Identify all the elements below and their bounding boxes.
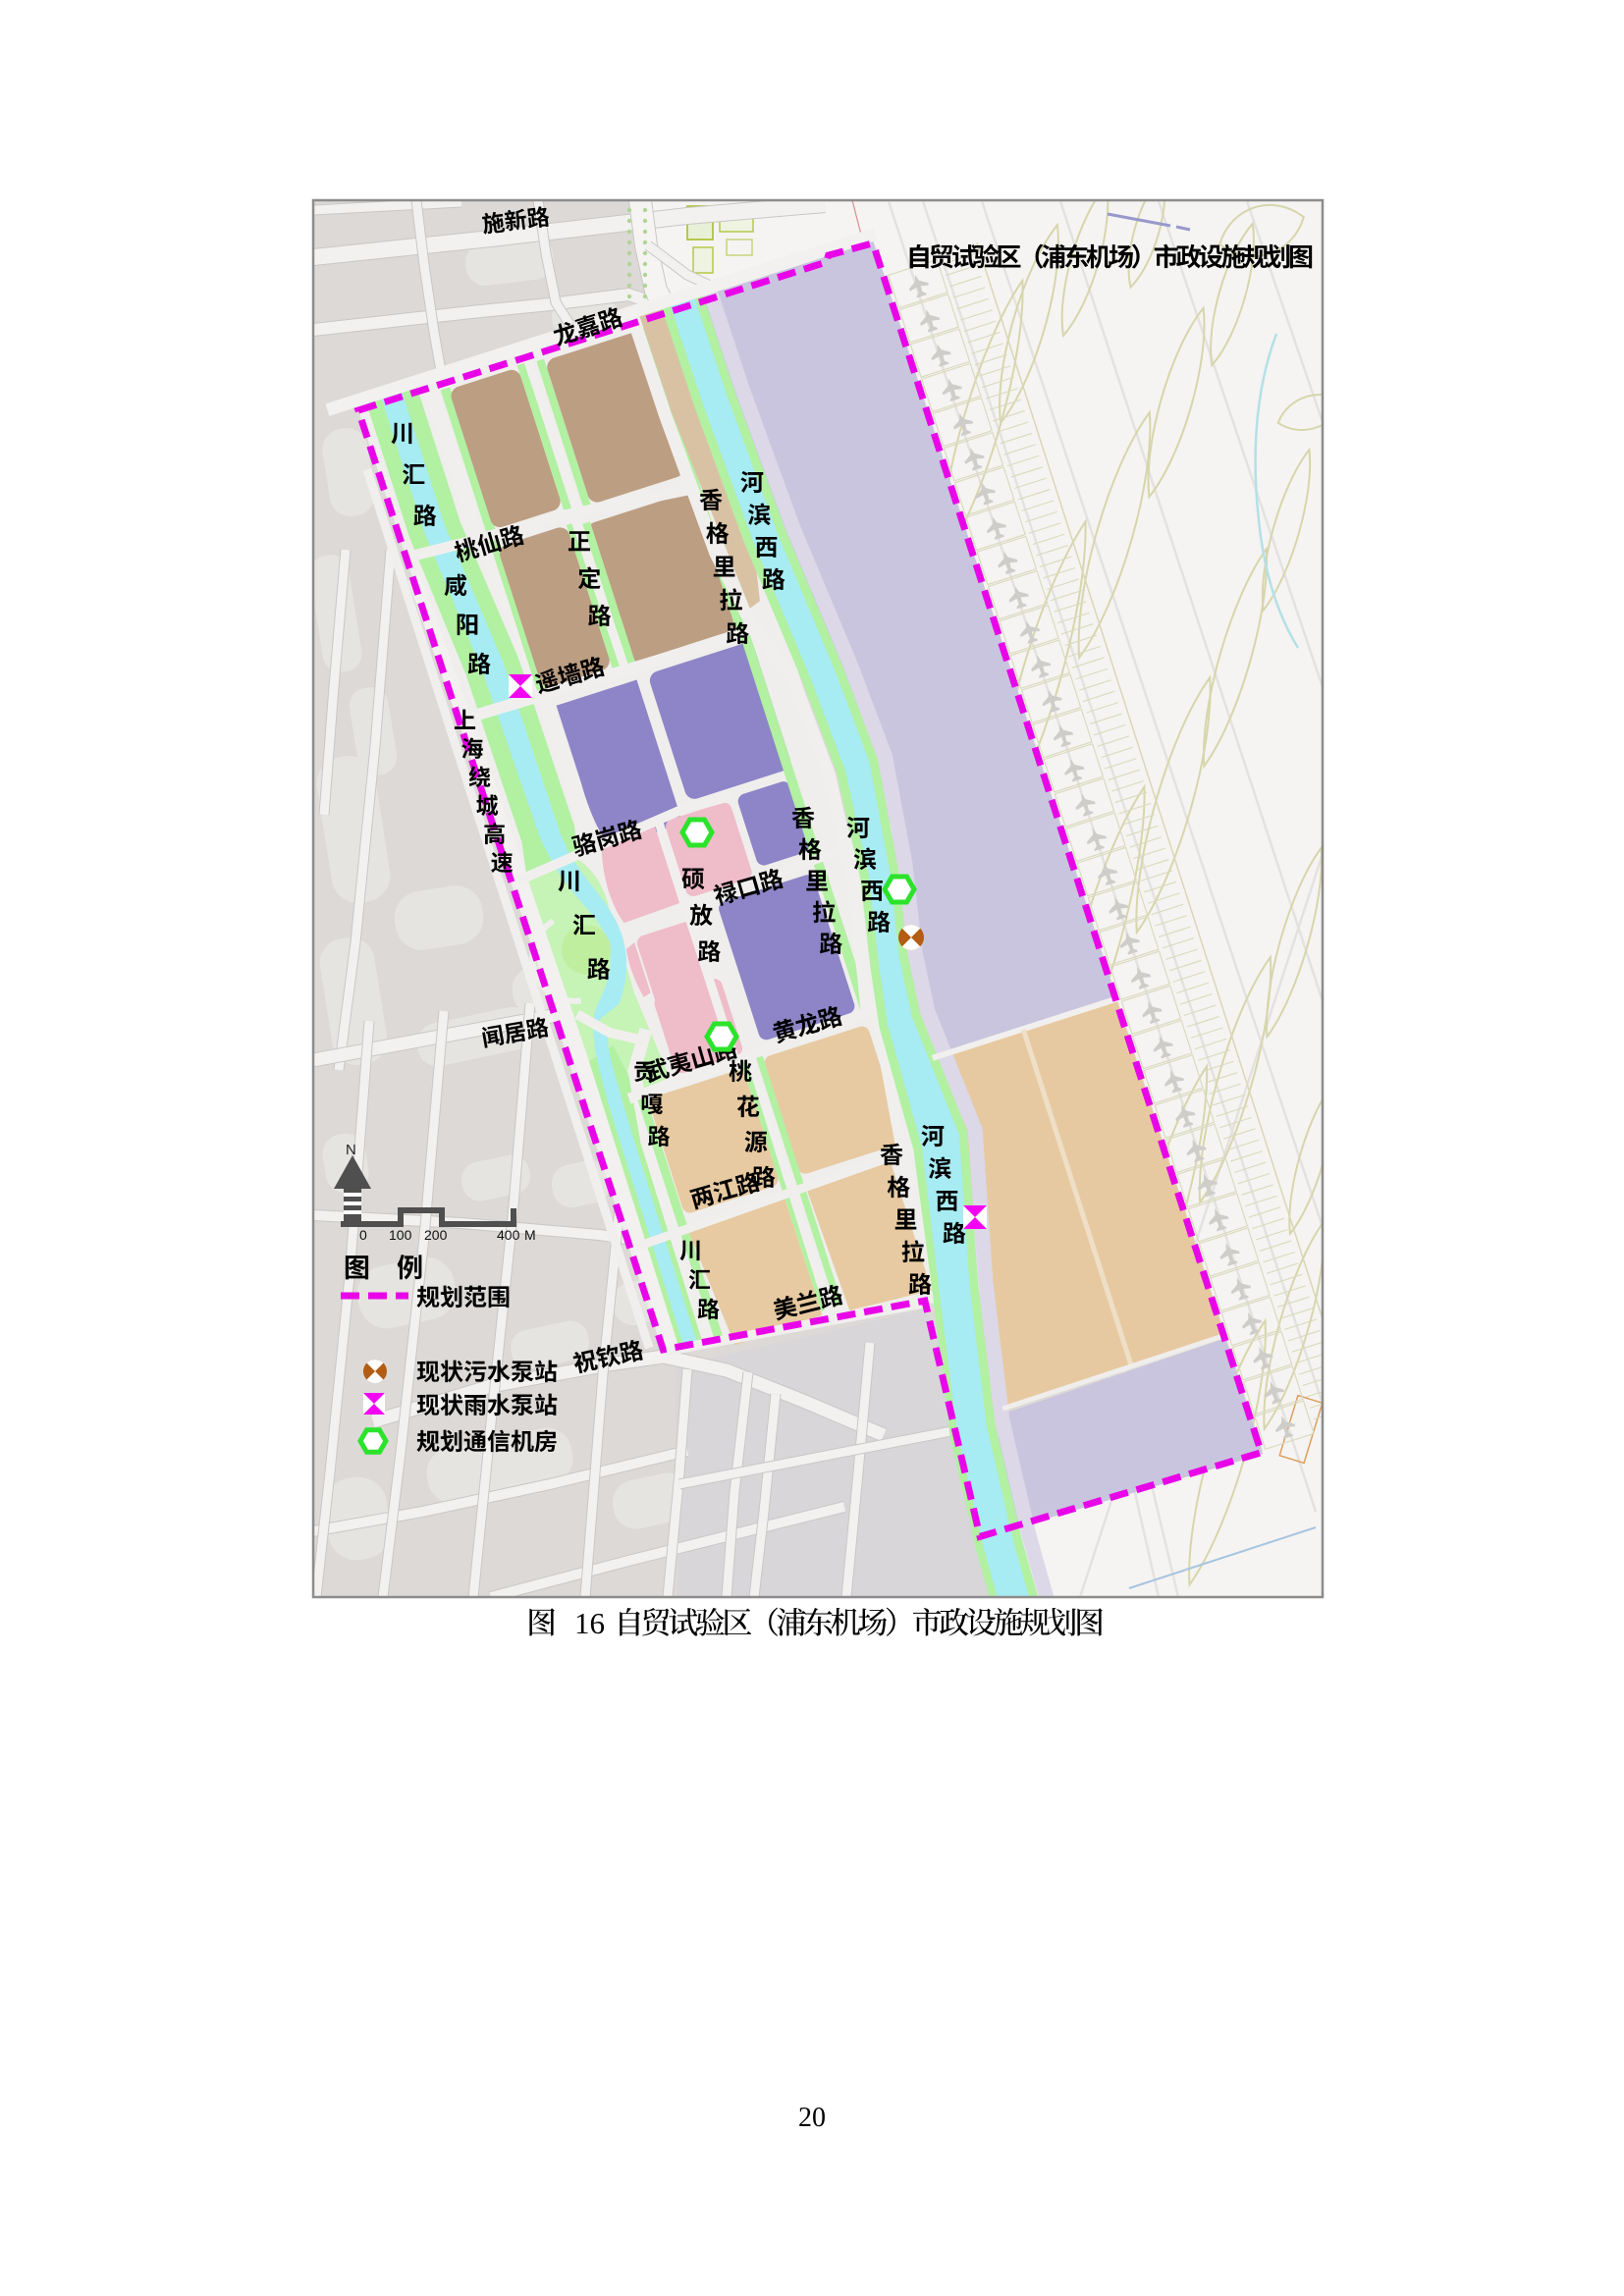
svg-text:100: 100	[389, 1227, 412, 1243]
svg-text:20: 20	[798, 2103, 826, 2133]
svg-text:0: 0	[359, 1227, 367, 1243]
svg-text:400: 400	[497, 1227, 520, 1243]
svg-text:M: M	[524, 1227, 536, 1243]
svg-text:200: 200	[424, 1227, 448, 1243]
svg-text:16: 16	[574, 1606, 605, 1640]
svg-text:N: N	[346, 1142, 356, 1158]
